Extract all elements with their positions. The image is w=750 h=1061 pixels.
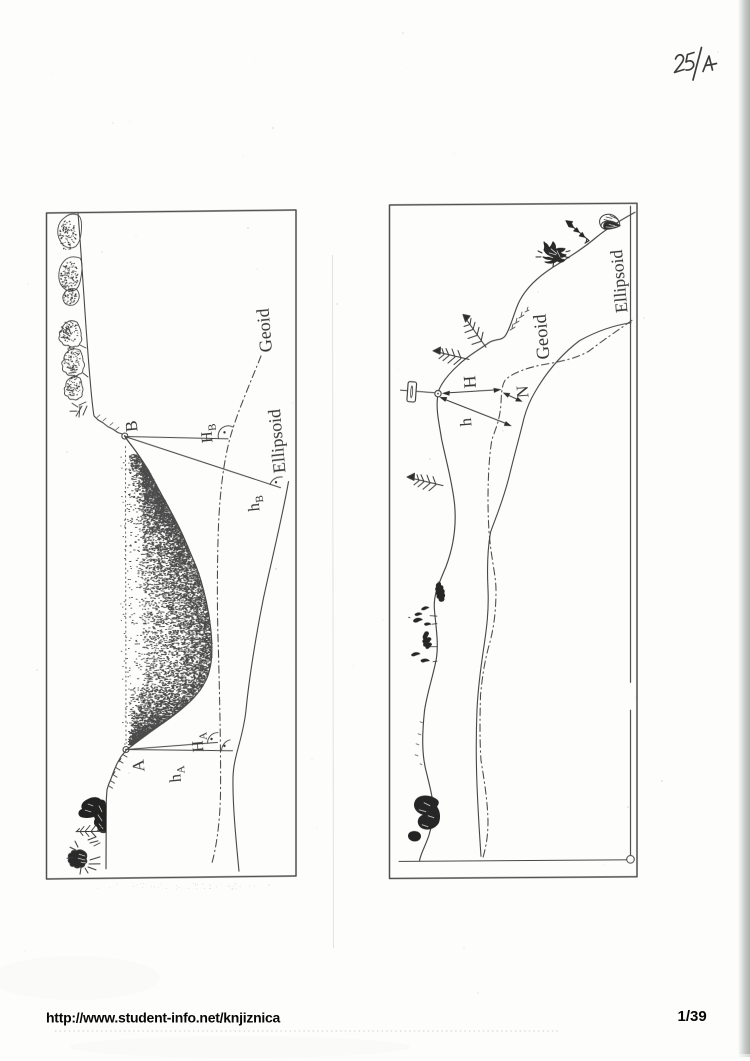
- svg-text:1/39: 1/39: [678, 1008, 707, 1025]
- svg-text:H: H: [459, 375, 480, 389]
- svg-text:http://www.student-info.net/kn: http://www.student-info.net/knjiznica: [46, 1010, 281, 1026]
- svg-text:Geoid: Geoid: [531, 313, 555, 361]
- svg-text:B: B: [122, 420, 142, 433]
- svg-text:N: N: [513, 385, 533, 399]
- svg-text:Geoid: Geoid: [253, 308, 276, 354]
